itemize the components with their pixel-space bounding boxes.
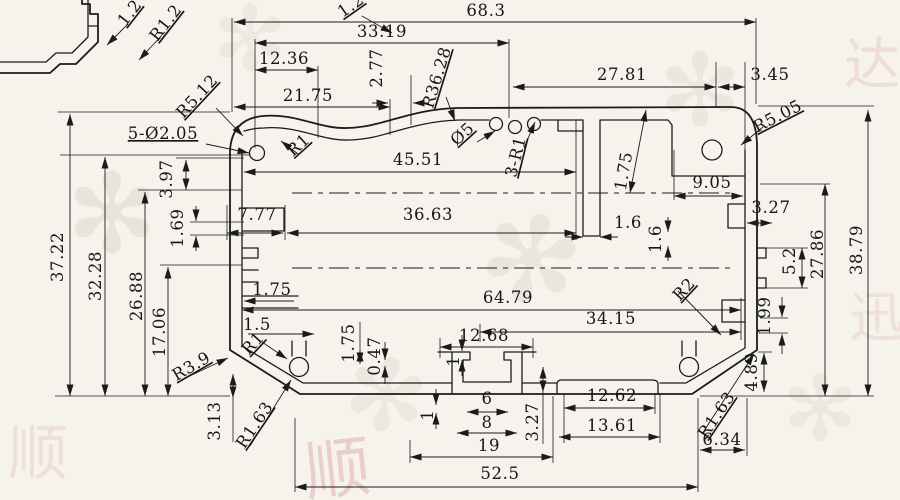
dim-label: 8 bbox=[481, 413, 492, 432]
dim-label: 38.79 bbox=[847, 225, 866, 275]
dim-label: R1 bbox=[283, 130, 314, 160]
dim-label: 17.06 bbox=[150, 307, 169, 357]
dim-label: 64.79 bbox=[483, 288, 533, 307]
dim-label: 1.2 bbox=[334, 0, 368, 21]
adjacent-profile-fragment bbox=[0, 0, 98, 73]
dim-label: R5.05 bbox=[750, 96, 805, 137]
screw-boss bbox=[702, 140, 722, 160]
dim-label: 1.75 bbox=[252, 280, 291, 299]
dim-label: 1 bbox=[418, 409, 437, 420]
watermark-glyph: ✻ bbox=[658, 32, 742, 149]
dim-label: 1.6 bbox=[614, 213, 642, 232]
dim-label: 2.77 bbox=[367, 48, 386, 87]
dim-label: 33.19 bbox=[357, 22, 407, 41]
dim-label: 6 bbox=[481, 389, 492, 408]
dim-label: 1.2 bbox=[114, 0, 146, 30]
dim-label: 45.51 bbox=[393, 150, 443, 169]
dim-label: 37.22 bbox=[48, 232, 67, 282]
pcb-slot-centerlines bbox=[292, 193, 736, 268]
watermark-glyph: 顺 bbox=[8, 419, 68, 489]
dim-label: 1.75 bbox=[339, 323, 358, 362]
dim-label: 1.99 bbox=[755, 296, 774, 335]
dimension-labels: 1.2R1.21.268.333.1912.362.77R36.2827.813… bbox=[48, 0, 866, 483]
dim-label: 13.61 bbox=[587, 416, 637, 435]
dim-label: 3.27 bbox=[751, 198, 790, 217]
dim-label: 26.88 bbox=[127, 271, 146, 321]
dim-label: 3.97 bbox=[157, 159, 176, 198]
dim-label: 34.15 bbox=[586, 309, 636, 328]
dim-label: 27.81 bbox=[597, 65, 647, 84]
dim-label: 1.6 bbox=[646, 225, 665, 253]
dim-label: 9.05 bbox=[692, 173, 731, 192]
dim-label: 12.62 bbox=[587, 386, 637, 405]
watermark-glyph: ✻ bbox=[464, 181, 597, 341]
watermark-glyph: ✻ bbox=[66, 150, 158, 278]
dim-label: 36.63 bbox=[403, 205, 453, 224]
watermark-glyph: 达 bbox=[844, 33, 900, 98]
extrusion-profile-drawing: 顺顺达迅✻✻✻✻✻✻ bbox=[0, 0, 900, 500]
dim-label: 5.2 bbox=[780, 247, 799, 275]
dim-label: 52.5 bbox=[480, 464, 519, 483]
screw-boss bbox=[290, 358, 309, 377]
dim-label: 3.13 bbox=[205, 401, 224, 440]
watermark-glyph: ✻ bbox=[212, 0, 287, 92]
dim-label: 3.27 bbox=[523, 402, 542, 441]
screw-hole bbox=[250, 146, 265, 161]
dim-label: 1.69 bbox=[168, 208, 187, 247]
dim-label: 5-Ø2.05 bbox=[128, 124, 199, 143]
engineering-drawing-canvas: 顺顺达迅✻✻✻✻✻✻ bbox=[0, 0, 900, 500]
dim-label: 4.89 bbox=[742, 352, 761, 391]
dim-label: 27.86 bbox=[808, 229, 827, 279]
screw-channel-lobe bbox=[509, 121, 522, 134]
dim-label: 3.45 bbox=[750, 65, 789, 84]
dim-label: 12.68 bbox=[459, 326, 509, 345]
dim-label: R1.2 bbox=[146, 1, 186, 45]
dim-label: Ø5 bbox=[447, 118, 478, 149]
dim-label: R1.63 bbox=[232, 398, 277, 452]
dim-label: 7.77 bbox=[237, 205, 276, 224]
dim-label: 32.28 bbox=[86, 251, 105, 301]
extension-lines bbox=[55, 18, 874, 492]
dim-label: 68.3 bbox=[466, 1, 505, 20]
dim-label: 1.75 bbox=[611, 150, 637, 192]
watermark-glyph: ✻ bbox=[782, 357, 857, 462]
dim-label: R3.9 bbox=[169, 348, 214, 385]
dim-label: R36.28 bbox=[418, 44, 455, 110]
dim-label: 1 bbox=[444, 355, 463, 366]
screw-channel-lobe bbox=[490, 118, 503, 131]
dim-label: 0.47 bbox=[365, 336, 384, 375]
watermark-glyph: 迅 bbox=[849, 286, 900, 349]
dim-label: R5.12 bbox=[172, 71, 221, 122]
dim-label: 12.36 bbox=[259, 49, 309, 68]
dim-label: 19 bbox=[478, 436, 500, 455]
watermark-glyph: 顺 bbox=[301, 428, 375, 500]
screw-boss bbox=[680, 358, 699, 377]
dim-label: 21.75 bbox=[283, 86, 333, 105]
dim-label: R2 bbox=[669, 274, 699, 305]
main-profile-outline bbox=[230, 107, 766, 394]
dim-label: 6.34 bbox=[702, 430, 741, 449]
